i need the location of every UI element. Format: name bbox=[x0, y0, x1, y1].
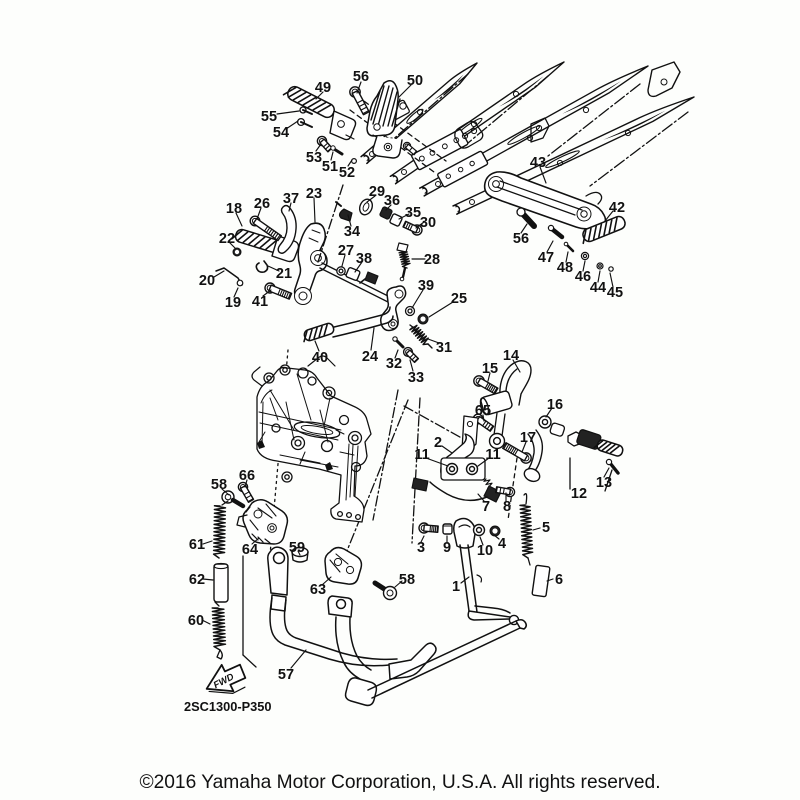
svg-text:33: 33 bbox=[408, 370, 424, 386]
svg-text:32: 32 bbox=[386, 356, 402, 372]
svg-text:39: 39 bbox=[418, 278, 434, 294]
svg-text:58: 58 bbox=[399, 572, 415, 588]
svg-text:53: 53 bbox=[306, 150, 322, 166]
svg-text:45: 45 bbox=[607, 285, 623, 301]
svg-text:18: 18 bbox=[226, 201, 242, 217]
svg-text:57: 57 bbox=[278, 667, 294, 683]
svg-text:5: 5 bbox=[542, 520, 550, 536]
svg-text:52: 52 bbox=[339, 165, 355, 181]
svg-text:35: 35 bbox=[405, 205, 421, 221]
svg-text:25: 25 bbox=[451, 291, 467, 307]
svg-text:63: 63 bbox=[310, 582, 326, 598]
svg-text:10: 10 bbox=[477, 543, 493, 559]
svg-text:24: 24 bbox=[362, 349, 378, 365]
svg-text:2: 2 bbox=[434, 435, 442, 451]
svg-text:17: 17 bbox=[520, 430, 536, 446]
svg-text:54: 54 bbox=[273, 125, 289, 141]
svg-text:36: 36 bbox=[384, 193, 400, 209]
svg-text:©2016 Yamaha Motor Corporation: ©2016 Yamaha Motor Corporation, U.S.A. A… bbox=[139, 772, 660, 793]
svg-text:16: 16 bbox=[547, 397, 563, 413]
svg-text:14: 14 bbox=[503, 348, 519, 364]
svg-text:51: 51 bbox=[322, 159, 338, 175]
svg-text:61: 61 bbox=[189, 537, 205, 553]
svg-text:21: 21 bbox=[276, 266, 292, 282]
svg-text:12: 12 bbox=[571, 486, 587, 502]
svg-text:62: 62 bbox=[189, 572, 205, 588]
svg-text:59: 59 bbox=[289, 540, 305, 556]
svg-text:4: 4 bbox=[498, 536, 506, 552]
svg-text:11: 11 bbox=[414, 447, 429, 463]
svg-text:60: 60 bbox=[188, 613, 204, 629]
svg-text:7: 7 bbox=[482, 499, 490, 515]
svg-text:22: 22 bbox=[219, 231, 235, 247]
svg-text:64: 64 bbox=[242, 542, 258, 558]
svg-text:49: 49 bbox=[315, 80, 331, 96]
svg-text:34: 34 bbox=[344, 224, 360, 240]
svg-text:48: 48 bbox=[557, 260, 573, 276]
svg-text:8: 8 bbox=[503, 499, 511, 515]
svg-text:1: 1 bbox=[452, 579, 460, 595]
svg-text:55: 55 bbox=[261, 109, 277, 125]
svg-text:47: 47 bbox=[538, 250, 554, 266]
svg-text:11: 11 bbox=[485, 447, 500, 463]
svg-text:26: 26 bbox=[254, 196, 270, 212]
svg-text:20: 20 bbox=[199, 273, 215, 289]
svg-text:43: 43 bbox=[530, 155, 546, 171]
svg-text:38: 38 bbox=[356, 251, 372, 267]
svg-text:29: 29 bbox=[369, 184, 385, 200]
svg-text:41: 41 bbox=[252, 294, 268, 310]
svg-text:28: 28 bbox=[424, 252, 440, 268]
svg-text:2SC1300-P350: 2SC1300-P350 bbox=[184, 699, 272, 714]
svg-text:40: 40 bbox=[312, 350, 328, 366]
svg-text:19: 19 bbox=[225, 295, 241, 311]
svg-text:27: 27 bbox=[338, 243, 354, 259]
svg-text:6: 6 bbox=[555, 572, 563, 588]
